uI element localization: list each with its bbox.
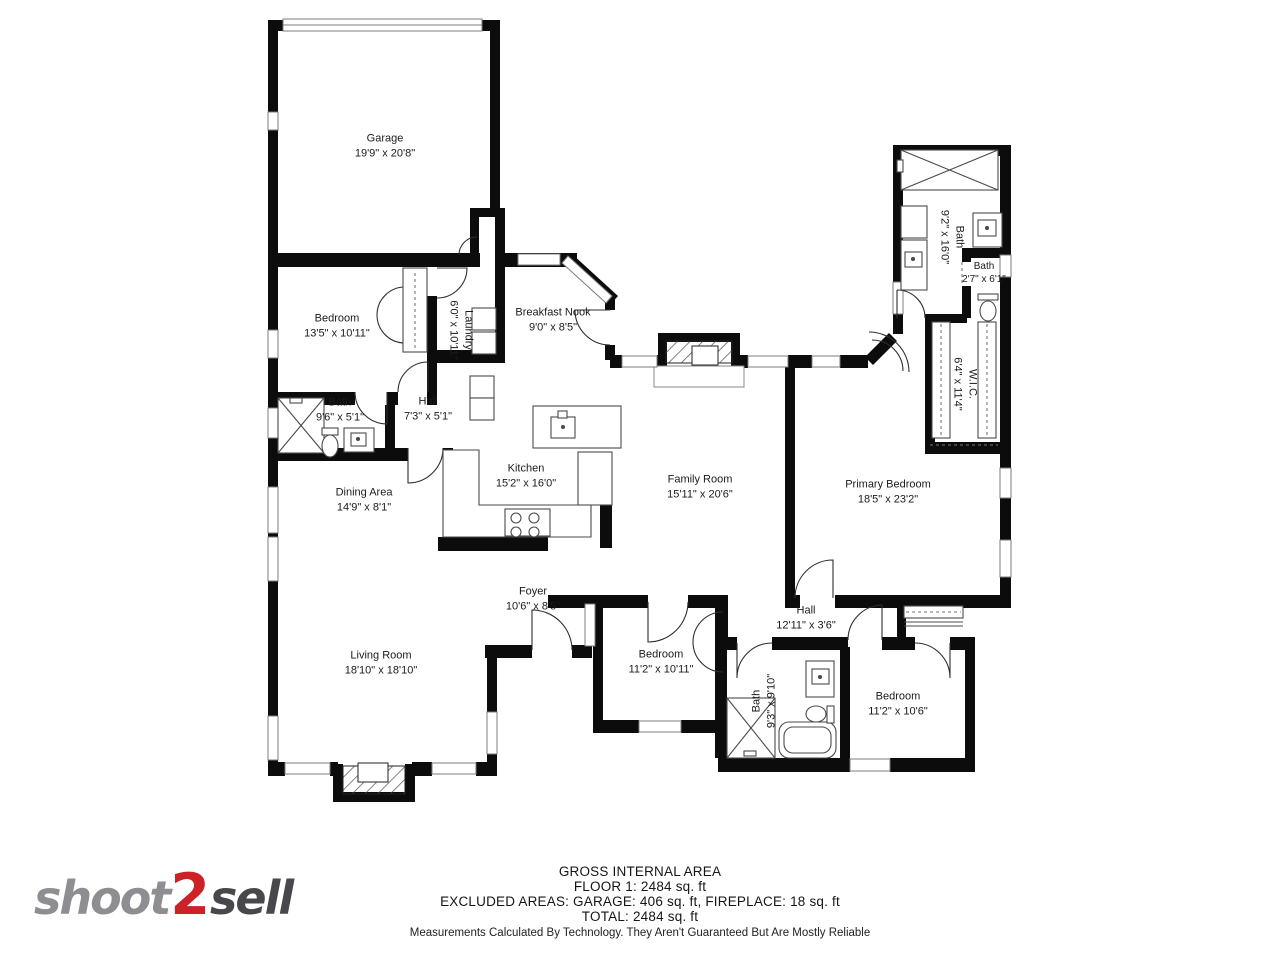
room-label-primary-bath: Bath 9'2" x 16'0"	[937, 210, 966, 264]
room-label-wic: W.I.C. 6'4" x 11'4"	[950, 357, 979, 410]
floor-plan-page: Garage 19'9" x 20'8" Bedroom 13'5" x 10'…	[0, 0, 1280, 960]
room-label-small-bath: Bath 2'7" x 6'1"	[962, 260, 1006, 286]
room-label-breakfast-nook: Breakfast Nook 9'0" x 8'5"	[515, 305, 590, 334]
room-label-bath1: Bath 9'6" x 5'1"	[316, 395, 364, 424]
room-label-living-room: Living Room 18'10" x 18'10"	[345, 648, 418, 677]
room-label-family-room: Family Room 15'11" x 20'6"	[667, 472, 733, 501]
room-label-dining-area: Dining Area 14'9" x 8'1"	[336, 485, 393, 514]
excluded-areas: EXCLUDED AREAS: GARAGE: 406 sq. ft, FIRE…	[0, 894, 1280, 909]
area-summary: GROSS INTERNAL AREA FLOOR 1: 2484 sq. ft…	[0, 864, 1280, 939]
room-label-laundry: Laundry 6'0" x 10'11"	[446, 300, 475, 360]
room-label-garage: Garage 19'9" x 20'8"	[355, 131, 415, 160]
room-label-hall2: Hall 12'11" x 3'6"	[776, 603, 836, 632]
room-label-primary-bedroom: Primary Bedroom 18'5" x 23'2"	[845, 477, 931, 506]
room-label-bath2: Bath 9'3" x 9'10"	[749, 674, 778, 728]
room-label-foyer: Foyer 10'6" x 8'5"	[506, 584, 560, 613]
gross-internal-area-title: GROSS INTERNAL AREA	[0, 864, 1280, 879]
room-label-hall1: Hall 7'3" x 5'1"	[404, 394, 452, 423]
room-label-bedroom3: Bedroom 11'2" x 10'6"	[868, 689, 928, 718]
total-area: TOTAL: 2484 sq. ft	[0, 909, 1280, 924]
room-label-kitchen: Kitchen 15'2" x 16'0"	[496, 461, 556, 490]
room-label-bedroom1: Bedroom 13'5" x 10'11"	[304, 311, 370, 340]
room-label-bedroom2: Bedroom 11'2" x 10'11"	[629, 647, 694, 676]
floor1-area: FLOOR 1: 2484 sq. ft	[0, 879, 1280, 894]
floor-plan-drawing	[0, 0, 1280, 960]
measurement-disclaimer: Measurements Calculated By Technology. T…	[0, 927, 1280, 939]
